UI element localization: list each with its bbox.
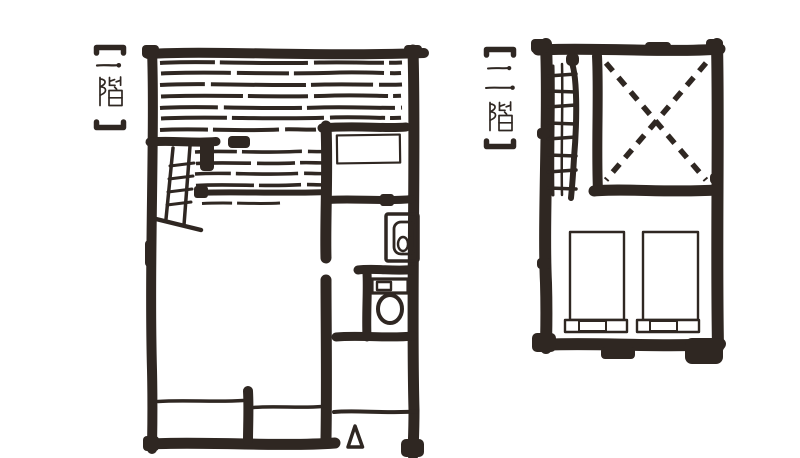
bracket-close-glyph xyxy=(487,141,514,147)
entrance-marker-icon xyxy=(348,426,363,447)
closet xyxy=(322,127,412,206)
floor-step-boxes xyxy=(158,391,322,441)
kanji-kai-glyph xyxy=(490,102,512,131)
first-floor-label: 【一階】 xyxy=(92,42,128,134)
bracket-close-glyph xyxy=(97,122,124,128)
bracket-open-glyph xyxy=(487,50,514,56)
void-opening xyxy=(594,56,717,191)
floor-plan-figure: 【一階】 xyxy=(0,0,800,458)
loft-wall xyxy=(150,136,250,171)
bracket-open-glyph xyxy=(97,48,124,54)
bed-icon xyxy=(565,232,627,332)
first-floor-drawing xyxy=(140,40,430,458)
kanji-ni-glyph xyxy=(486,66,515,90)
stair-ladder-icon xyxy=(548,53,579,198)
partition-wall xyxy=(326,126,327,439)
kanji-kai-glyph xyxy=(100,77,122,106)
second-floor-drawing xyxy=(528,33,728,373)
toilet-icon xyxy=(372,279,408,323)
entrance-step xyxy=(334,411,417,412)
kanji-ichi-glyph xyxy=(97,63,121,68)
first-floor-label-glyphs xyxy=(92,42,128,134)
bed-icon xyxy=(637,232,699,332)
loft-hatching xyxy=(160,62,402,203)
second-floor-label: 【二階】 xyxy=(482,43,518,155)
second-floor-label-glyphs xyxy=(482,43,518,155)
